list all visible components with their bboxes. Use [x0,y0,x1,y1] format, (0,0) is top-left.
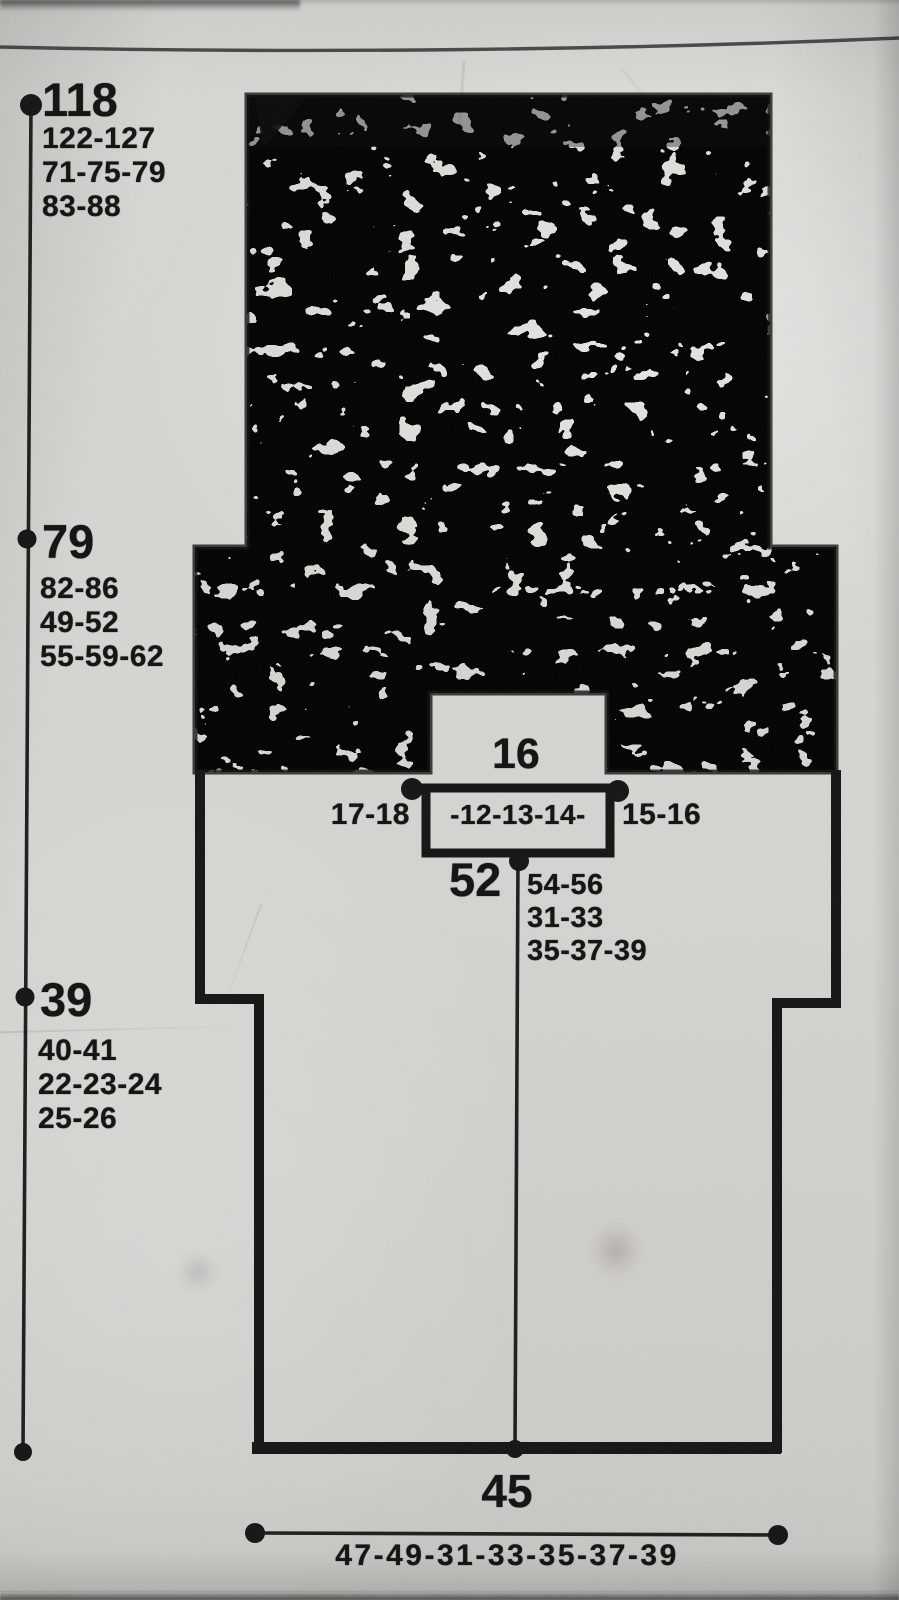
upper-height-value: 79 [42,518,94,565]
total-height-alt-1: 122-127 [42,124,166,154]
upper-height-alt-2: 49-52 [40,608,164,638]
neck-left-alt: 17-18 [318,800,410,830]
upper-height-alt-1: 82-86 [40,574,164,604]
hem-alt: 47-49-31-33-35-37-39 [292,1541,722,1571]
pattern-schematic-page: 118 122-127 71-75-79 83-88 79 82-86 49-5… [0,0,899,1600]
center-length-alt-3: 35-37-39 [527,937,647,966]
total-height-alt-3: 83-88 [42,192,166,222]
center-length-alt-2: 31-33 [527,904,647,933]
center-length-alts: 54-56 31-33 35-37-39 [527,871,647,970]
upper-height-alt-3: 55-59-62 [40,642,164,672]
neck-inner-alt: -12-13-14- [432,801,604,829]
total-height-value: 118 [42,76,118,123]
lower-height-alts: 40-41 22-23-24 25-26 [38,1036,162,1138]
total-height-alts: 122-127 71-75-79 83-88 [42,124,166,226]
neck-right-alt: 15-16 [622,800,701,830]
lower-height-alt-2: 22-23-24 [38,1070,162,1100]
center-length-value: 52 [449,856,501,903]
hem-width-value: 45 [457,1468,557,1514]
neck-width-value: 16 [492,733,540,776]
lower-height-alt-3: 25-26 [38,1104,162,1134]
total-height-alt-2: 71-75-79 [42,158,166,188]
lower-height-value: 39 [40,976,92,1023]
lower-height-alt-1: 40-41 [38,1036,162,1066]
upper-height-alts: 82-86 49-52 55-59-62 [40,574,164,676]
center-length-alt-1: 54-56 [527,871,647,900]
